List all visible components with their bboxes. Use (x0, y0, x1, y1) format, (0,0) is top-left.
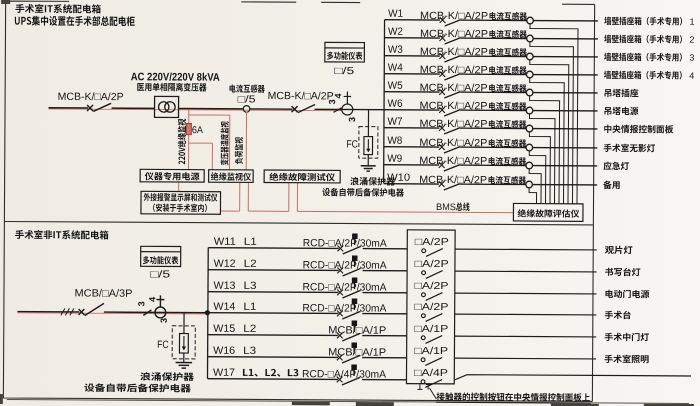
svg-text:RCD-□A/4P/30mA: RCD-□A/4P/30mA (302, 368, 386, 380)
svg-text:FC: FC (346, 138, 358, 150)
svg-text:W4: W4 (388, 62, 403, 74)
svg-text:MCB-K/□A/2P: MCB-K/□A/2P (420, 10, 488, 22)
svg-text:MCB-K/□A/2P: MCB-K/□A/2P (268, 90, 334, 102)
svg-text:4: 4 (333, 93, 343, 98)
svg-text:W8: W8 (387, 135, 402, 147)
svg-text:2: 2 (689, 35, 694, 45)
svg-text:RCD-□A/2P/30mA: RCD-□A/2P/30mA (303, 259, 387, 271)
svg-text:W3: W3 (388, 44, 403, 56)
svg-text:W5: W5 (388, 80, 403, 92)
svg-text:L3: L3 (243, 345, 256, 357)
svg-text:3: 3 (327, 99, 337, 104)
svg-text:W2: W2 (388, 26, 403, 38)
svg-text:□/5: □/5 (238, 94, 257, 105)
svg-text:W11: W11 (214, 236, 236, 248)
svg-text:MCB-K/□A/2P: MCB-K/□A/2P (419, 155, 487, 167)
svg-text:W9: W9 (387, 153, 402, 165)
svg-text:W17: W17 (213, 367, 235, 379)
svg-text:MCB-K/□A/2P: MCB-K/□A/2P (420, 82, 488, 94)
svg-text:MCB-K/□A/2P: MCB-K/□A/2P (420, 46, 488, 58)
svg-text:MCB-K/□A/2P: MCB-K/□A/2P (419, 137, 487, 149)
svg-text:MCB-K/□A/2P: MCB-K/□A/2P (419, 118, 487, 130)
svg-text:□A/2P: □A/2P (414, 302, 448, 313)
svg-text:L1: L1 (243, 301, 256, 313)
svg-text:RCD-□A/2P/30mA: RCD-□A/2P/30mA (303, 237, 387, 249)
svg-text:AC 220V/220V 8kVA: AC 220V/220V 8kVA (131, 71, 220, 84)
svg-text:MCB-K/□A/2P: MCB-K/□A/2P (58, 91, 124, 103)
svg-text:L3: L3 (243, 280, 256, 292)
svg-text:MCB/□A/3P: MCB/□A/3P (74, 287, 132, 299)
svg-text:4: 4 (147, 297, 157, 302)
svg-text:L1: L1 (244, 236, 257, 248)
svg-text:W12: W12 (214, 258, 236, 270)
svg-text:MCB/□A/1P: MCB/□A/1P (328, 346, 386, 358)
svg-text:RCD-□A/2P/30mA: RCD-□A/2P/30mA (302, 281, 386, 293)
svg-text:□A/4P: □A/4P (414, 368, 448, 379)
svg-text:4: 4 (689, 71, 694, 81)
svg-text:□A/2P: □A/2P (414, 281, 448, 292)
svg-text:MCB/□A/1P: MCB/□A/1P (328, 324, 386, 336)
svg-text:□/5: □/5 (334, 66, 355, 77)
svg-text:□A/1P: □A/1P (414, 324, 448, 335)
svg-text:MCB-K/□A/2P: MCB-K/□A/2P (419, 174, 487, 186)
svg-text:W6: W6 (388, 98, 403, 110)
svg-text:□A/2P: □A/2P (415, 259, 449, 270)
svg-text:W15: W15 (213, 323, 235, 335)
svg-text:1: 1 (690, 17, 695, 27)
svg-text:L2: L2 (244, 258, 257, 270)
svg-text:W13: W13 (213, 280, 235, 292)
svg-text:W7: W7 (387, 116, 402, 128)
svg-text:3: 3 (347, 117, 357, 122)
svg-text:□A/2P: □A/2P (415, 237, 449, 248)
svg-text:MCB-K/□A/2P: MCB-K/□A/2P (420, 100, 488, 112)
svg-text:W1: W1 (388, 8, 403, 20)
svg-text:3: 3 (159, 318, 169, 323)
svg-text:MCB-K/□A/2P: MCB-K/□A/2P (420, 28, 488, 40)
svg-text:W16: W16 (213, 345, 235, 357)
svg-text:W10: W10 (387, 172, 410, 184)
svg-text:3: 3 (689, 53, 694, 63)
svg-text:6A: 6A (192, 125, 203, 136)
svg-text:L2: L2 (243, 323, 256, 335)
svg-text:FC: FC (157, 339, 169, 351)
svg-text:3: 3 (136, 301, 146, 306)
svg-text:RCD-□A/2P/30mA: RCD-□A/2P/30mA (302, 302, 386, 314)
svg-text:MCB-K/□A/2P: MCB-K/□A/2P (420, 64, 488, 76)
svg-text:□/5: □/5 (150, 269, 171, 280)
svg-text:BMS: BMS (436, 202, 456, 213)
svg-text:W14: W14 (213, 301, 235, 313)
svg-text:□A/1P: □A/1P (414, 346, 448, 357)
